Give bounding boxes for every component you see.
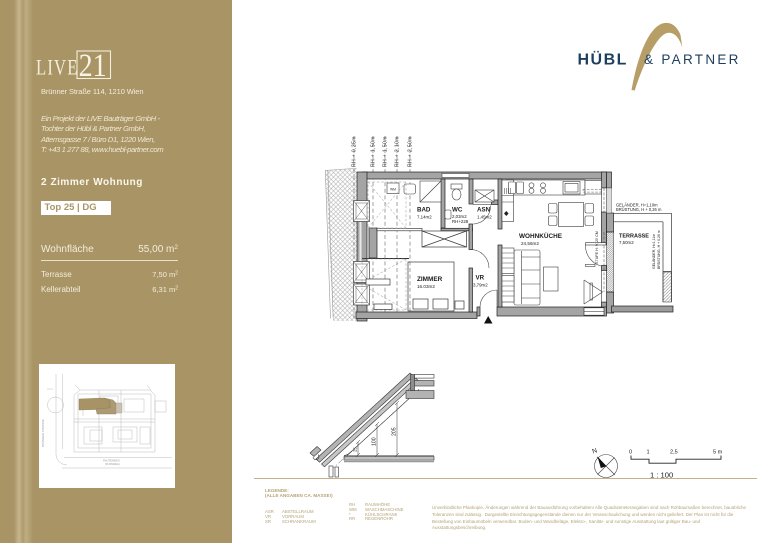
svg-text:3,79m2: 3,79m2 [473, 283, 488, 288]
svg-text:ZIMMER: ZIMMER [417, 276, 443, 283]
svg-text:BRÜSTUNG, H + 0,26 m: BRÜSTUNG, H + 0,26 m [616, 207, 662, 212]
svg-text:N: N [591, 447, 598, 455]
svg-text:1,45m2: 1,45m2 [477, 215, 492, 220]
svg-text:WC: WC [452, 207, 463, 214]
svg-text:BAD: BAD [417, 207, 431, 214]
svg-text:25: 25 [353, 447, 358, 452]
svg-text:VR: VR [476, 275, 485, 282]
svg-text:2,5: 2,5 [670, 450, 678, 456]
svg-text:7,14m2: 7,14m2 [417, 215, 432, 220]
svg-text:205: 205 [392, 427, 398, 436]
svg-text:RAUTENWEG: RAUTENWEG [103, 459, 120, 463]
svg-text:5 m: 5 m [713, 450, 723, 456]
svg-text:TERRASSE: TERRASSE [619, 234, 649, 240]
svg-text:16.03m2: 16.03m2 [417, 284, 435, 289]
svg-text:0: 0 [629, 450, 632, 456]
svg-text:ASN: ASN [477, 207, 491, 214]
svg-text:RH + 2,10m: RH + 2,10m [395, 136, 401, 167]
svg-text:7,50m2: 7,50m2 [619, 240, 634, 245]
svg-text:100: 100 [372, 437, 378, 446]
svg-text:(FUSSWEG): (FUSSWEG) [105, 462, 120, 466]
svg-text:RH + 0,25m: RH + 0,25m [352, 136, 358, 167]
svg-text:1: 1 [647, 450, 650, 456]
svg-text:GELÄNDER, H=1,11m: GELÄNDER, H=1,11m [652, 234, 656, 269]
svg-text:RH+228: RH+228 [452, 219, 469, 224]
svg-text:WOHNKÜCHE: WOHNKÜCHE [519, 231, 563, 240]
svg-text:BRÜSTUNG, H + 0,26 m: BRÜSTUNG, H + 0,26 m [657, 230, 661, 269]
svg-text:STUFE H: V, 20 CM: STUFE H: V, 20 CM [595, 231, 599, 264]
svg-text:BRÜNNER STRASSE: BRÜNNER STRASSE [41, 419, 45, 447]
svg-text:RH + 1,50m: RH + 1,50m [371, 136, 377, 167]
svg-text:WM: WM [390, 188, 396, 192]
svg-text:24,56m2: 24,56m2 [521, 241, 539, 246]
svg-text:RH + 1,50m: RH + 1,50m [383, 136, 389, 167]
svg-text:RH + 2,50m: RH + 2,50m [408, 136, 414, 167]
